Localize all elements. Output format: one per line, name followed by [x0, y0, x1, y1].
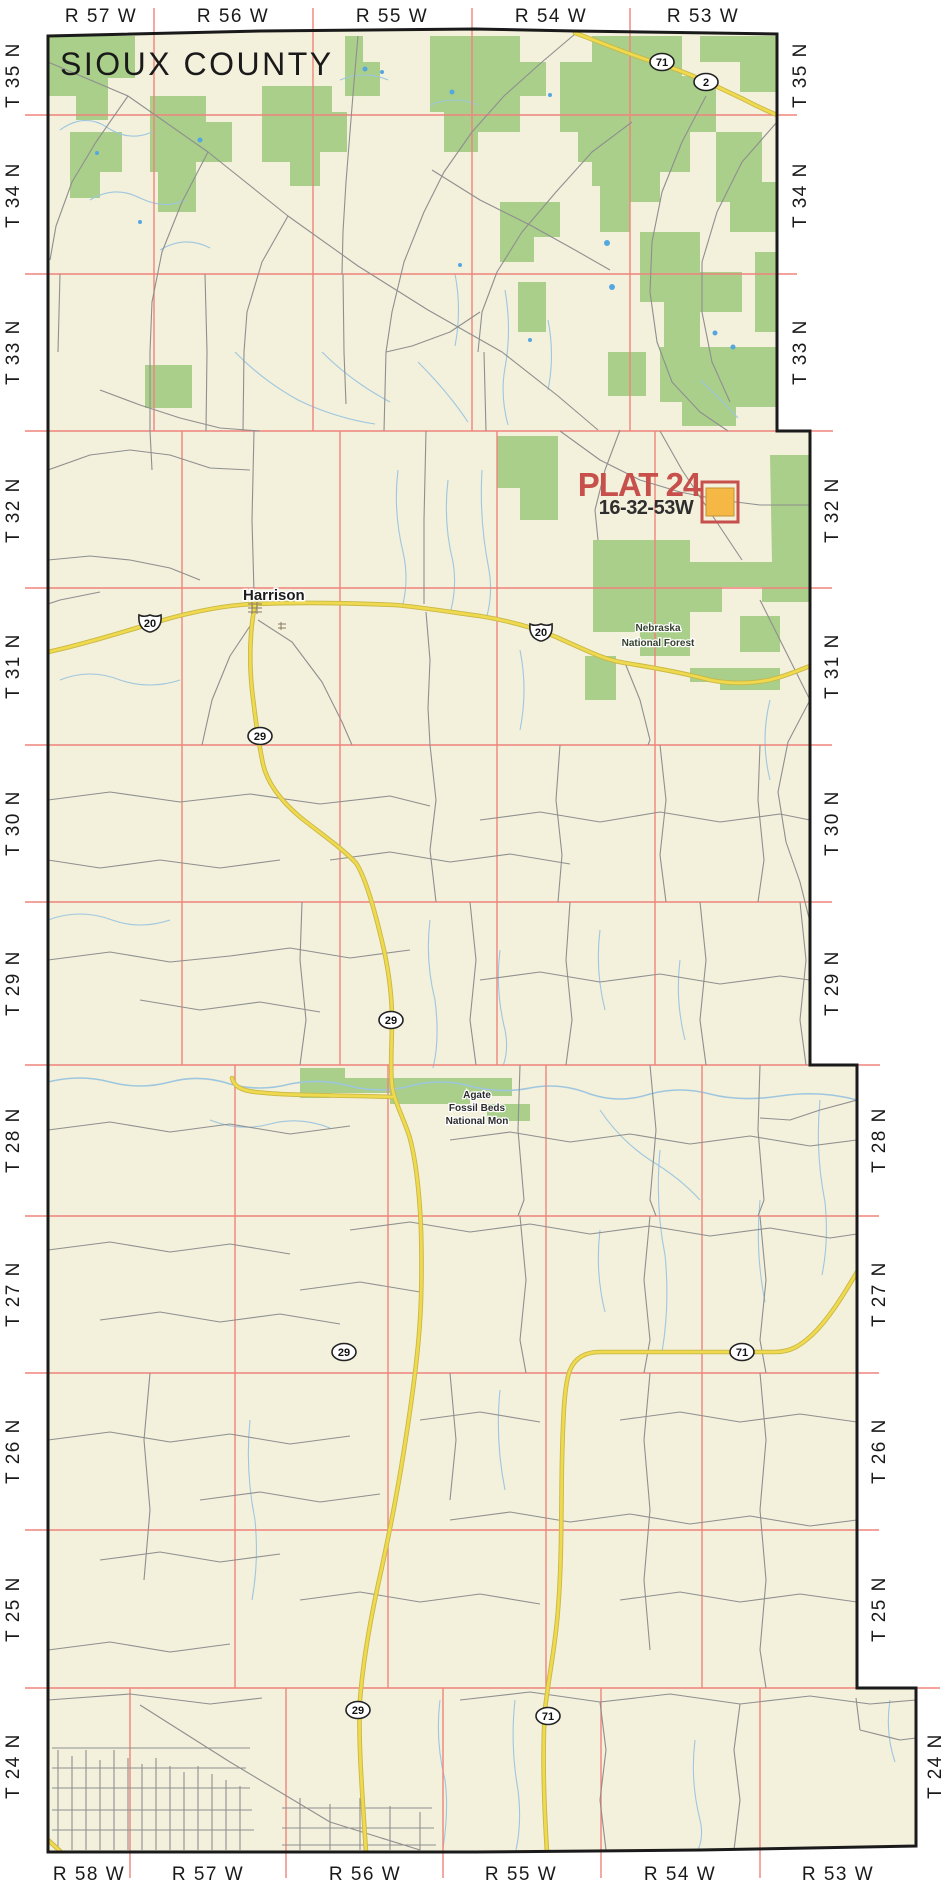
range-labels-top: R 57 W R 56 W R 55 W R 54 W R 53 W — [65, 6, 739, 27]
township-label-right-3: T 32 N — [822, 477, 843, 543]
highway-71-number-south: 71 — [542, 1711, 554, 1723]
highway-71-number-middle: 71 — [736, 1347, 748, 1359]
township-label-left-2: T 33 N — [3, 319, 24, 385]
township-label-right-11: T 24 N — [925, 1733, 946, 1799]
highway-29-shield-2: 29 — [379, 1012, 403, 1029]
monument-label-line3: National Mon — [446, 1116, 509, 1127]
highway-2-shield: 2 — [694, 74, 718, 91]
range-label-bottom-2: R 56 W — [329, 1864, 401, 1885]
monument-label-line2: Fossil Beds — [449, 1103, 506, 1114]
range-labels-bottom: R 58 W R 57 W R 56 W R 55 W R 54 W R 53 … — [53, 1864, 874, 1885]
township-label-left-11: T 24 N — [3, 1733, 24, 1799]
us-20-number-west: 20 — [144, 618, 156, 630]
township-labels-left: T 35 N T 34 N T 33 N T 32 N T 31 N T 30 … — [3, 42, 24, 1799]
township-label-right-9: T 26 N — [869, 1418, 890, 1484]
highway-29-number-3: 29 — [338, 1347, 350, 1359]
forest-label-line1: Nebraska — [635, 623, 680, 634]
plat-index-map: 71 2 20 20 29 29 29 71 — [0, 0, 950, 1891]
township-label-right-4: T 31 N — [822, 633, 843, 699]
county-land — [48, 29, 916, 1852]
highway-71-shield-south: 71 — [536, 1708, 560, 1725]
township-label-right-10: T 25 N — [869, 1576, 890, 1642]
county-terrain — [48, 29, 916, 1852]
township-label-left-6: T 29 N — [3, 950, 24, 1016]
township-label-right-5: T 30 N — [822, 790, 843, 856]
highway-71-shield: 71 — [650, 54, 674, 71]
township-label-right-8: T 27 N — [869, 1261, 890, 1327]
township-label-left-7: T 28 N — [3, 1107, 24, 1173]
forest-label-line2: National Forest — [622, 638, 695, 649]
range-label-bottom-4: R 54 W — [644, 1864, 716, 1885]
township-label-left-4: T 31 N — [3, 633, 24, 699]
range-label-bottom-0: R 58 W — [53, 1864, 125, 1885]
range-label-bottom-3: R 55 W — [485, 1864, 557, 1885]
township-label-left-9: T 26 N — [3, 1418, 24, 1484]
plat-code: 16-32-53W — [599, 497, 694, 519]
county-map-svg: 71 2 20 20 29 29 29 71 — [0, 0, 950, 1891]
township-label-right-1: T 34 N — [790, 162, 811, 228]
range-label-bottom-1: R 57 W — [172, 1864, 244, 1885]
range-label-bottom-5: R 53 W — [802, 1864, 874, 1885]
township-label-left-1: T 34 N — [3, 162, 24, 228]
township-label-left-5: T 30 N — [3, 790, 24, 856]
monument-label-line1: Agate — [463, 1090, 491, 1101]
township-label-left-8: T 27 N — [3, 1261, 24, 1327]
range-label-top-3: R 54 W — [515, 6, 587, 27]
range-label-top-4: R 53 W — [667, 6, 739, 27]
township-label-right-2: T 33 N — [790, 319, 811, 385]
county-title: SIOUX COUNTY — [60, 46, 334, 82]
township-label-left-3: T 32 N — [3, 477, 24, 543]
highway-29-number-1: 29 — [254, 731, 266, 743]
us-20-number-east: 20 — [535, 627, 547, 639]
town-label-harrison: Harrison — [243, 587, 305, 604]
township-label-right-7: T 28 N — [869, 1107, 890, 1173]
township-label-left-0: T 35 N — [3, 42, 24, 108]
range-label-top-0: R 57 W — [65, 6, 137, 27]
range-label-top-1: R 56 W — [197, 6, 269, 27]
highway-29-shield-1: 29 — [248, 728, 272, 745]
highway-2-number: 2 — [703, 77, 709, 89]
highway-29-shield-3: 29 — [332, 1344, 356, 1361]
highway-29-shield-4: 29 — [346, 1702, 370, 1719]
plat-highlight-fill — [706, 488, 734, 516]
township-label-right-0: T 35 N — [790, 42, 811, 108]
highway-71-number: 71 — [656, 57, 668, 69]
highway-29-number-4: 29 — [352, 1705, 364, 1717]
township-label-left-10: T 25 N — [3, 1576, 24, 1642]
township-label-right-6: T 29 N — [822, 950, 843, 1016]
highway-71-shield-middle: 71 — [730, 1344, 754, 1361]
range-label-top-2: R 55 W — [356, 6, 428, 27]
highway-29-number-2: 29 — [385, 1015, 397, 1027]
